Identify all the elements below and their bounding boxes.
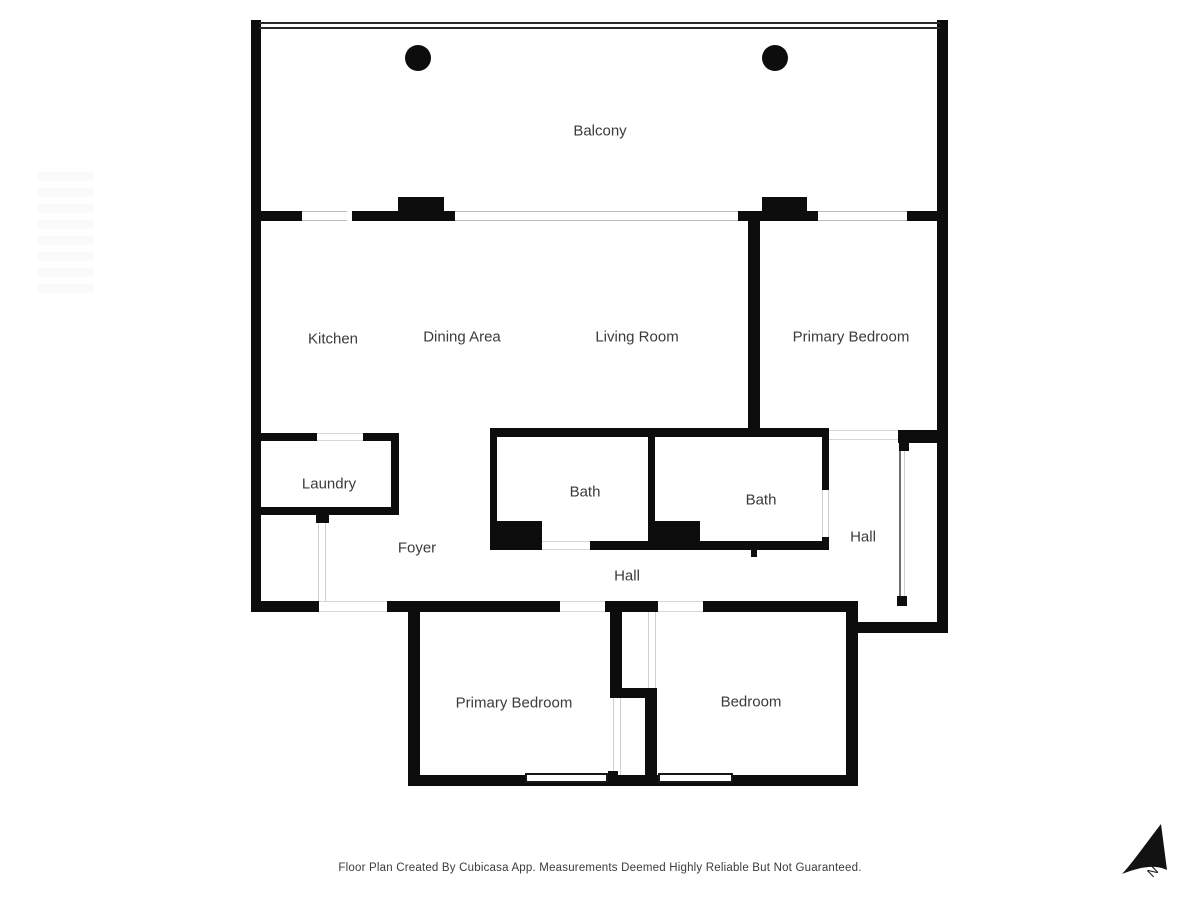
wall-bottom xyxy=(525,783,608,786)
wall-south xyxy=(703,601,858,612)
room-label-hall-center: Hall xyxy=(614,568,640,585)
room-label-kitchen: Kitchen xyxy=(308,331,358,348)
wall-exterior-left xyxy=(251,20,261,612)
wall-south xyxy=(251,601,319,612)
wall-laundry-bottom xyxy=(251,507,399,515)
partition-line-hall xyxy=(899,451,905,596)
room-label-dining-area: Dining Area xyxy=(423,329,501,346)
balcony-column xyxy=(405,45,431,71)
wall-bath-right xyxy=(822,437,829,490)
room-label-balcony: Balcony xyxy=(573,123,626,140)
footer-disclaimer: Floor Plan Created By Cubicasa App. Meas… xyxy=(0,862,1200,874)
balcony-railing-line xyxy=(259,27,940,29)
sliding-door-panel xyxy=(398,197,444,211)
room-label-laundry: Laundry xyxy=(302,476,356,493)
window xyxy=(818,211,907,221)
window xyxy=(658,773,733,783)
wall xyxy=(251,211,302,221)
room-label-living-room: Living Room xyxy=(595,329,678,346)
room-label-primary-bedroom-right: Primary Bedroom xyxy=(793,329,910,346)
room-label-bedroom: Bedroom xyxy=(721,694,782,711)
window xyxy=(302,211,347,221)
wall-bedroom-divider-upper xyxy=(610,601,622,698)
wall-stub xyxy=(899,443,909,451)
room-label-hall-right: Hall xyxy=(850,529,876,546)
door-opening-primary-right xyxy=(829,430,898,440)
wall-bedroom-right xyxy=(846,601,858,786)
window xyxy=(525,773,608,783)
room-label-primary-bedroom-bottom: Primary Bedroom xyxy=(456,695,573,712)
floor-plan: Balcony Kitchen Dining Area Living Room … xyxy=(0,0,1200,900)
room-label-bath-right: Bath xyxy=(746,492,777,509)
wall-bottom xyxy=(733,775,858,786)
partition-line-foyer xyxy=(318,523,326,601)
sliding-door-panel xyxy=(762,197,807,211)
wall-stub xyxy=(751,550,757,557)
door-opening-primary-bottom xyxy=(560,601,605,612)
door-opening-bath-left xyxy=(542,541,590,550)
balcony-railing-line xyxy=(259,22,940,24)
wall xyxy=(907,211,948,221)
room-label-bath-left: Bath xyxy=(570,484,601,501)
wall-exterior-right xyxy=(937,20,948,633)
wall-bottom xyxy=(658,783,733,786)
wall-laundry-right xyxy=(391,433,399,515)
room-label-foyer: Foyer xyxy=(398,540,436,557)
wall-stub xyxy=(897,596,907,606)
wall-laundry-top xyxy=(251,433,317,441)
wall-stub xyxy=(316,515,329,523)
window xyxy=(455,211,738,221)
door-line-primary-bottom xyxy=(613,698,621,775)
wall-bottom-right-cap xyxy=(855,622,948,633)
door-opening-bedroom xyxy=(658,601,703,612)
wall-hall-cap xyxy=(898,430,938,443)
wall-bath-top xyxy=(490,428,829,437)
door-line-bedroom xyxy=(648,612,656,688)
bath-fixture-block xyxy=(490,521,542,550)
wall-primary-bottom-left xyxy=(408,601,420,786)
sliding-door-track xyxy=(352,211,455,221)
wall-living-primary-divider xyxy=(748,211,760,437)
door-opening-entry xyxy=(319,601,387,612)
scan-artifact xyxy=(38,172,94,298)
door-opening-laundry xyxy=(317,433,363,441)
wall-bottom xyxy=(408,775,525,786)
wall-bottom xyxy=(608,775,658,786)
balcony-column xyxy=(762,45,788,71)
door-opening-bath-right xyxy=(822,490,829,537)
wall-bedroom-divider-lower xyxy=(645,688,657,786)
wall-bath-bottom xyxy=(590,541,829,550)
